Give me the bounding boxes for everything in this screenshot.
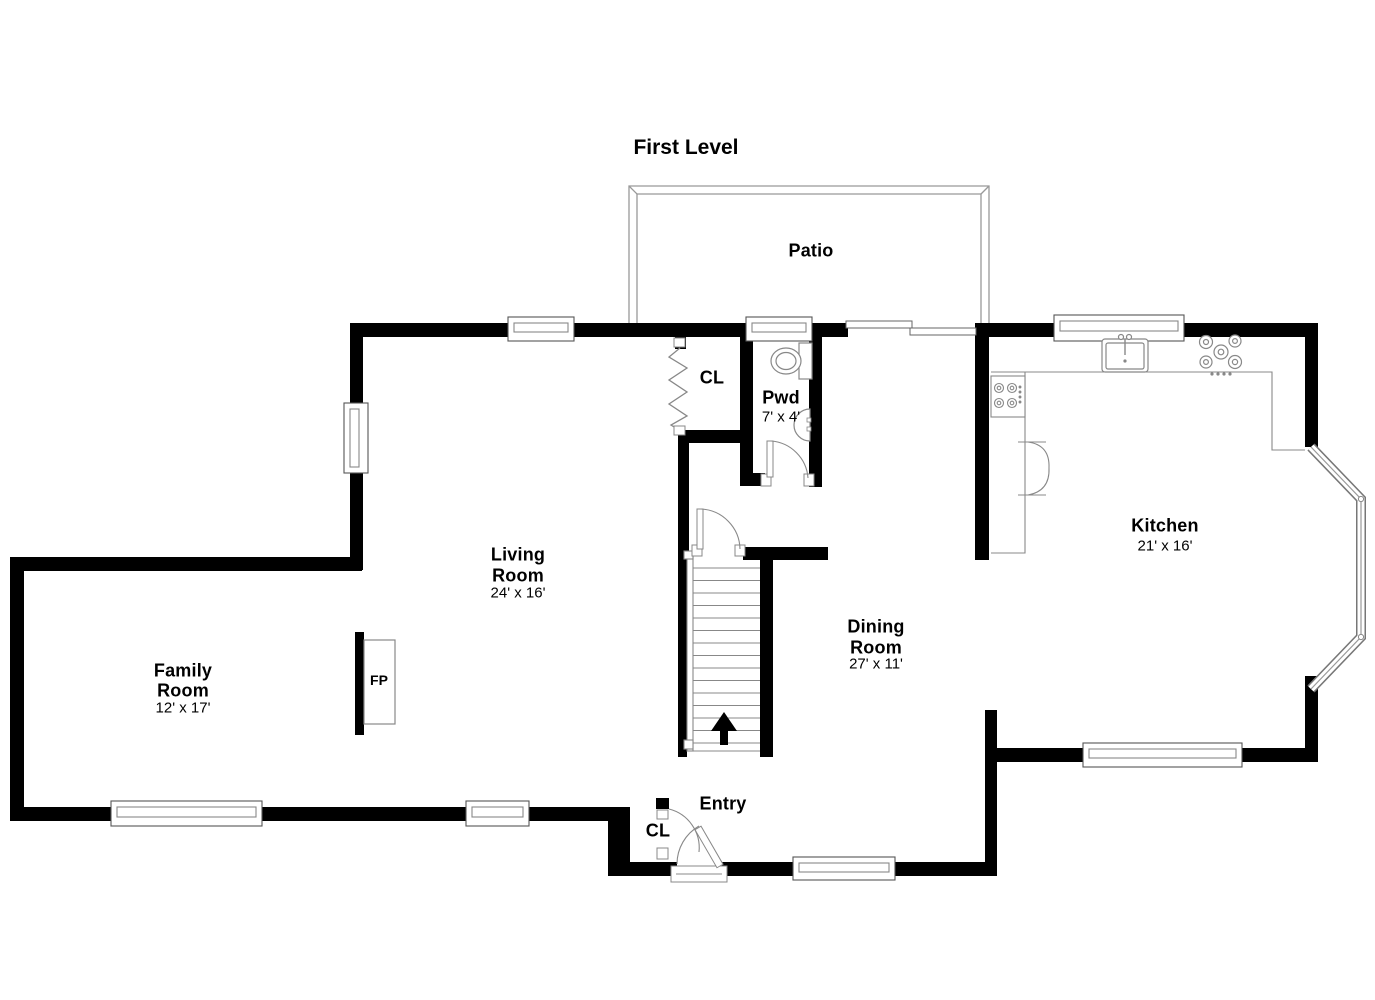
appliance-double-doors [1018,442,1049,495]
entry-closet-label: CL [646,821,670,842]
dining-room-dims: 27' x 11' [849,656,903,673]
window-living-top [508,317,574,341]
window-living-left [344,403,368,473]
kitchen-label: Kitchen [1131,516,1198,537]
hall-closet-label: CL [700,368,724,389]
living-room-label-1: Living [491,545,545,566]
cooktop-left-icon [991,376,1025,417]
toilet-icon [771,343,812,379]
living-room-dims: 24' x 16' [491,585,546,602]
walls [10,323,1318,876]
front-door [671,826,727,882]
floor-plan: First Level Patio CL Pwd 7' x 4' Living … [0,0,1375,1000]
fireplace-label: FP [370,672,388,688]
family-room-label-2: Room [157,681,209,702]
window-family-bottom [111,801,262,826]
window-powder-top [746,317,812,341]
family-room-dims: 12' x 17' [156,700,211,717]
dining-room-label-1: Dining [847,617,904,638]
stairs-up-arrow-icon [711,712,737,745]
bay-window [1311,447,1364,689]
living-room-label-2: Room [492,566,544,587]
kitchen-dims: 21' x 16' [1138,538,1193,555]
patio-label: Patio [788,241,833,262]
powder-room-label: Pwd [762,388,800,409]
powder-room-dims: 7' x 4' [762,409,800,426]
window-living-bottom [466,801,529,826]
cooktop-right-icon [1200,335,1242,375]
entry-label: Entry [699,794,746,815]
window-entry-bottom [793,857,895,880]
stairs-door [692,509,745,556]
kitchen-sink-icon [1102,335,1148,373]
window-kitchen-bottom [1083,743,1242,767]
powder-door [761,441,814,486]
sliding-door-patio [846,321,976,335]
accordion-door [669,338,687,435]
page-title: First Level [633,136,738,160]
family-room-label-1: Family [154,661,212,682]
